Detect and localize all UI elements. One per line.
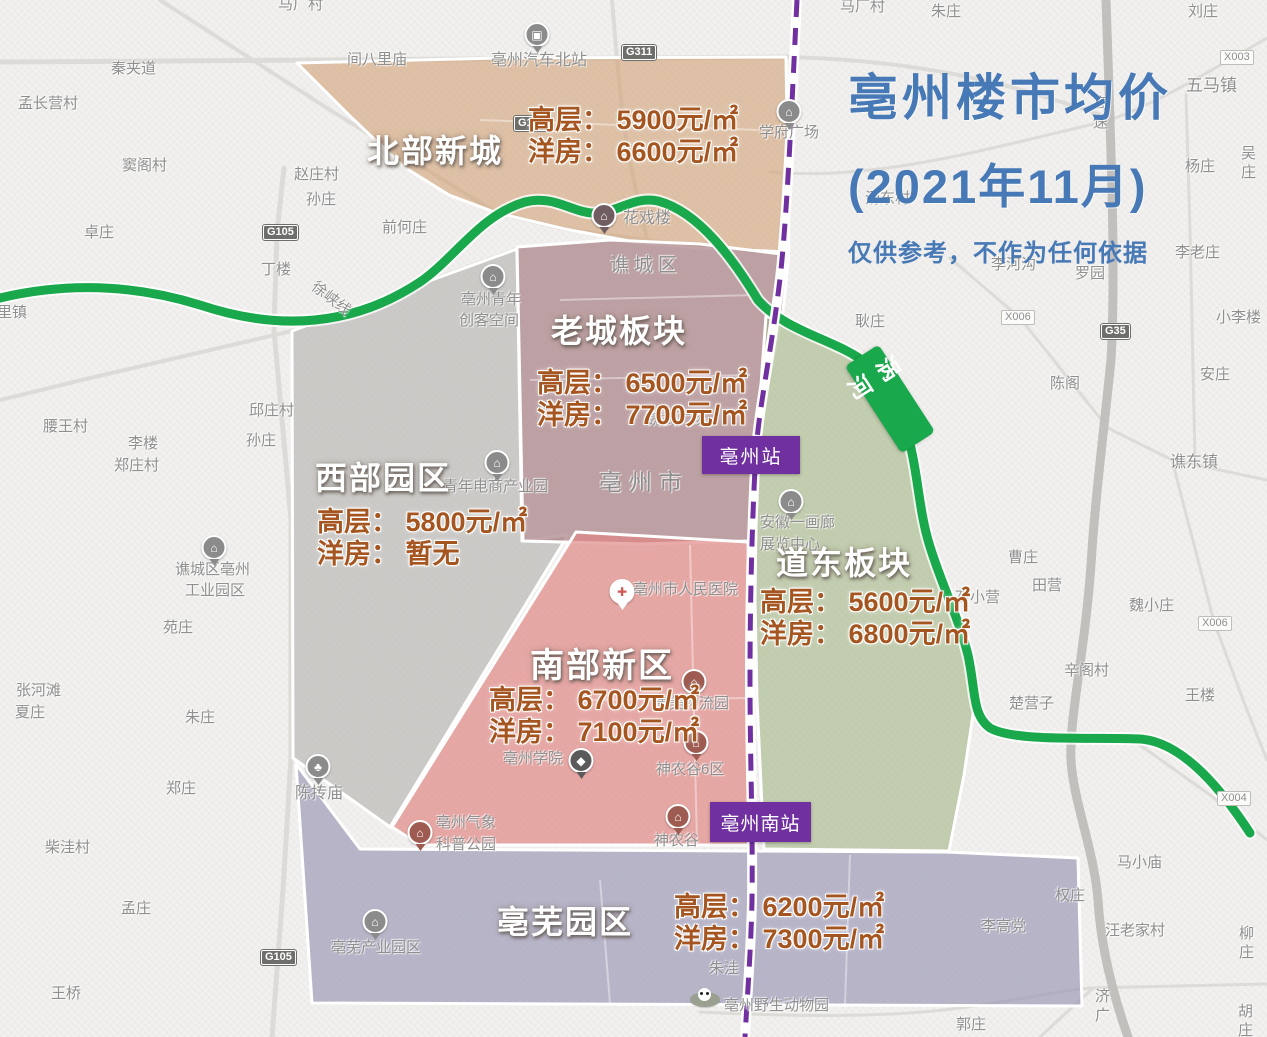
title-block: 亳州楼市均价 (2021年11月) 仅供参考，不作为任何依据 (848, 58, 1172, 268)
road-right-vertical (1186, 95, 1195, 460)
title-disclaimer: 仅供参考，不作为任何依据 (848, 233, 1172, 268)
map-canvas: 马厂村马厂村孟长营村秦夹道窦阁村卓庄里镇丁楼赵庄村孙庄前何庄间八里庙亳州汽车北站… (0, 0, 1267, 1037)
region-north-polygon (297, 57, 789, 252)
page-title-date: (2021年11月) (848, 148, 1172, 217)
road-x006-south (1172, 460, 1267, 760)
road-g105-west (272, 168, 291, 1037)
page-title: 亳州楼市均价 (848, 58, 1172, 130)
